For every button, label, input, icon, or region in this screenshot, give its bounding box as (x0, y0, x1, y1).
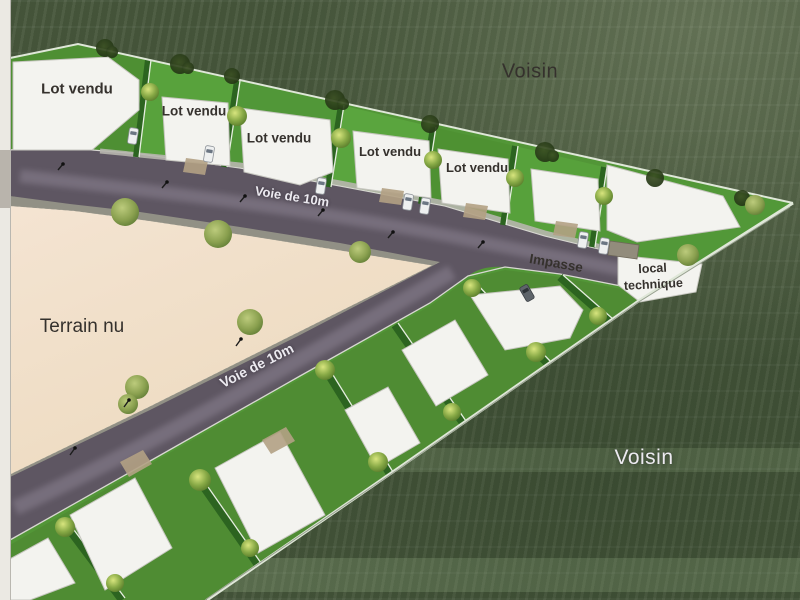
local-technique-line2: technique (624, 275, 684, 292)
lot-vendu-label-5: Lot vendu (446, 160, 508, 176)
terrain-nu-label: Terrain nu (40, 315, 125, 339)
site-plan: Voisin Voisin Terrain nu Lot vendu Lot v… (0, 0, 800, 600)
lot-vendu-label-2: Lot vendu (162, 104, 227, 121)
lot-vendu-label-3: Lot vendu (247, 131, 312, 148)
local-technique-label: local technique (623, 260, 684, 294)
lot-vendu-label-4: Lot vendu (359, 144, 421, 160)
neighbor-label-bottom: Voisin (614, 445, 673, 471)
local-technique-line1: local (638, 261, 667, 276)
neighbor-label-top: Voisin (502, 60, 558, 85)
photo-border (0, 0, 11, 600)
site-plan-drawing (0, 0, 800, 600)
lot-vendu-label-1: Lot vendu (41, 81, 113, 100)
